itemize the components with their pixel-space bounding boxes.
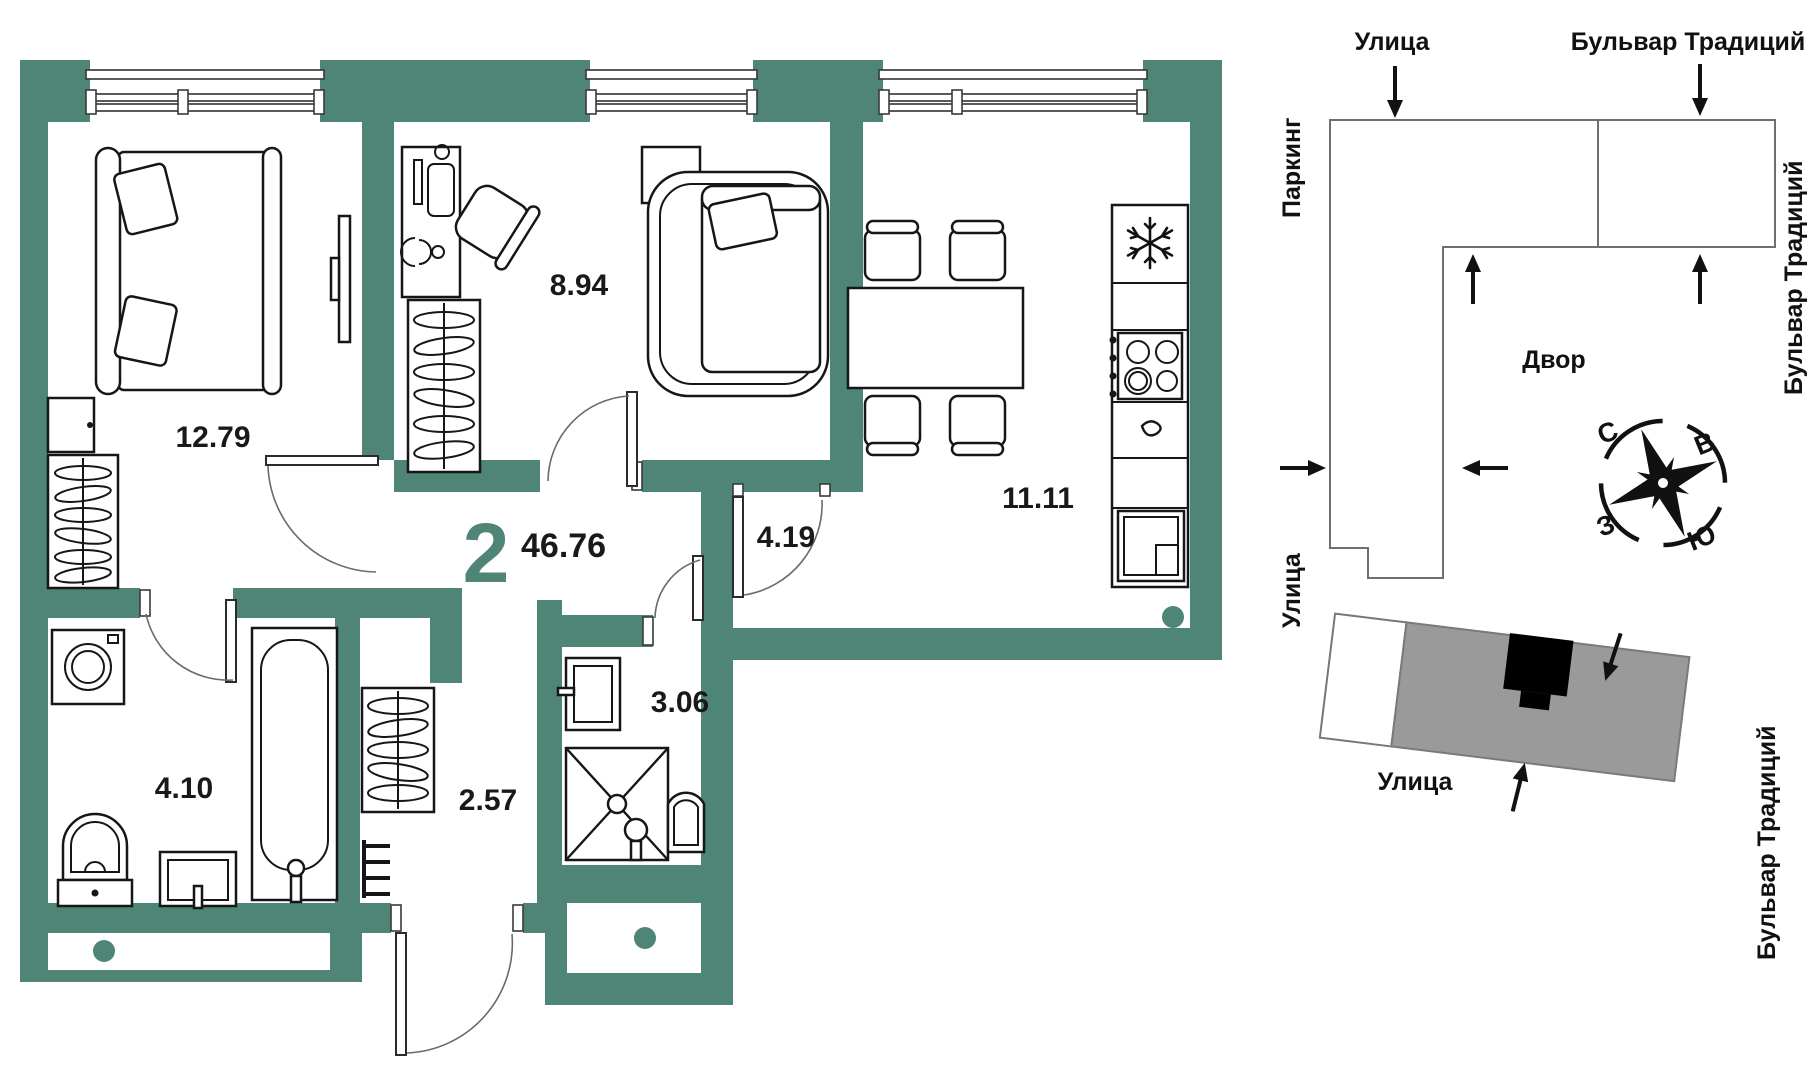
furniture-bedroom <box>48 148 350 588</box>
washing-machine-kitchen <box>1118 511 1184 581</box>
dining-chair <box>950 221 1005 280</box>
area-entry: 2.57 <box>459 784 517 817</box>
window-kitchen <box>879 70 1147 114</box>
highlighted-building <box>1320 612 1690 782</box>
windows <box>86 70 1147 114</box>
plan-dot <box>1162 606 1184 628</box>
arrow-up-icon <box>1465 254 1481 304</box>
furniture-office <box>401 145 828 472</box>
area-bathroom: 4.10 <box>155 772 213 805</box>
label-boulevard-top: Бульвар Традиций <box>1571 28 1805 56</box>
tv-icon <box>331 216 350 342</box>
area-shower: 3.06 <box>651 686 709 719</box>
wardrobe-office <box>408 300 480 472</box>
compass-icon: С В З Ю <box>1582 402 1745 565</box>
label-parking: Паркинг <box>1278 117 1306 218</box>
door-entrance <box>391 905 523 1055</box>
label-boulevard-right: Бульвар Традиций <box>1780 161 1808 395</box>
area-bedroom: 12.79 <box>175 421 250 454</box>
area-kitchen: 11.11 <box>1002 482 1074 515</box>
label-yard: Двор <box>1522 346 1585 374</box>
arrow-down-icon <box>1692 64 1708 116</box>
shower-toilet-icon <box>668 793 704 852</box>
arrow-from-street-icon <box>1505 761 1533 813</box>
total-area: 46.76 <box>521 527 606 565</box>
table-knob <box>87 422 93 428</box>
furniture-entry <box>362 688 434 898</box>
wardrobe-entry <box>362 688 434 812</box>
compass-south: Ю <box>1683 519 1720 557</box>
arrow-left-icon <box>1462 460 1508 476</box>
door-shower <box>643 556 703 645</box>
plan-dot <box>93 940 115 962</box>
door-bedroom <box>266 456 378 572</box>
shower-sink-icon <box>558 658 620 730</box>
label-street-top: Улица <box>1355 28 1431 56</box>
washing-machine-icon <box>52 630 124 704</box>
label-street-bottom: Улица <box>1378 768 1454 796</box>
towel-radiator-icon <box>364 840 390 898</box>
single-bed <box>648 172 828 396</box>
arrow-down-icon <box>1387 66 1403 118</box>
pillow-icon <box>114 295 178 366</box>
area-hall: 4.19 <box>757 521 815 554</box>
toilet-icon <box>58 814 132 906</box>
furniture-bathroom <box>52 628 337 908</box>
kitchen-unit <box>1110 205 1189 587</box>
bathtub-icon <box>252 628 337 902</box>
door-bathroom <box>140 590 236 682</box>
bath-sink-icon <box>160 852 236 908</box>
dining-chair <box>865 221 920 280</box>
arrow-up-icon <box>1692 254 1708 304</box>
plan-dot <box>634 927 656 949</box>
window-bedroom <box>86 70 324 114</box>
window-office <box>586 70 757 114</box>
arrow-right-icon <box>1280 460 1326 476</box>
door-office <box>548 392 642 490</box>
floorplan-canvas: 2 46.76 12.79 8.94 11.11 4.19 3.06 2.57 … <box>0 0 1815 1079</box>
label-boulevard-right-lower: Бульвар Традиций <box>1753 726 1781 960</box>
site-plan: С В З Ю Улица Бульвар Традиций Паркинг У… <box>1278 28 1808 960</box>
dining-chair <box>865 396 920 455</box>
area-office: 8.94 <box>550 269 609 302</box>
dining-table <box>848 288 1023 388</box>
floor-plan: 2 46.76 12.79 8.94 11.11 4.19 3.06 2.57 … <box>20 60 1222 1055</box>
desk <box>401 145 460 297</box>
wardrobe-bedroom <box>48 455 118 588</box>
compass-east: В <box>1690 426 1719 461</box>
compass-north: С <box>1593 415 1622 450</box>
desk-chair <box>447 176 541 272</box>
bed-footboard <box>263 148 281 394</box>
rooms-count: 2 <box>463 506 510 600</box>
stove-icon <box>1110 333 1183 399</box>
label-street-left: Улица <box>1278 552 1306 628</box>
dining-chair <box>950 396 1005 455</box>
furniture-kitchen <box>848 205 1188 628</box>
shower-cabin-icon <box>566 748 668 860</box>
floorplan-page: 2 46.76 12.79 8.94 11.11 4.19 3.06 2.57 … <box>0 0 1815 1079</box>
